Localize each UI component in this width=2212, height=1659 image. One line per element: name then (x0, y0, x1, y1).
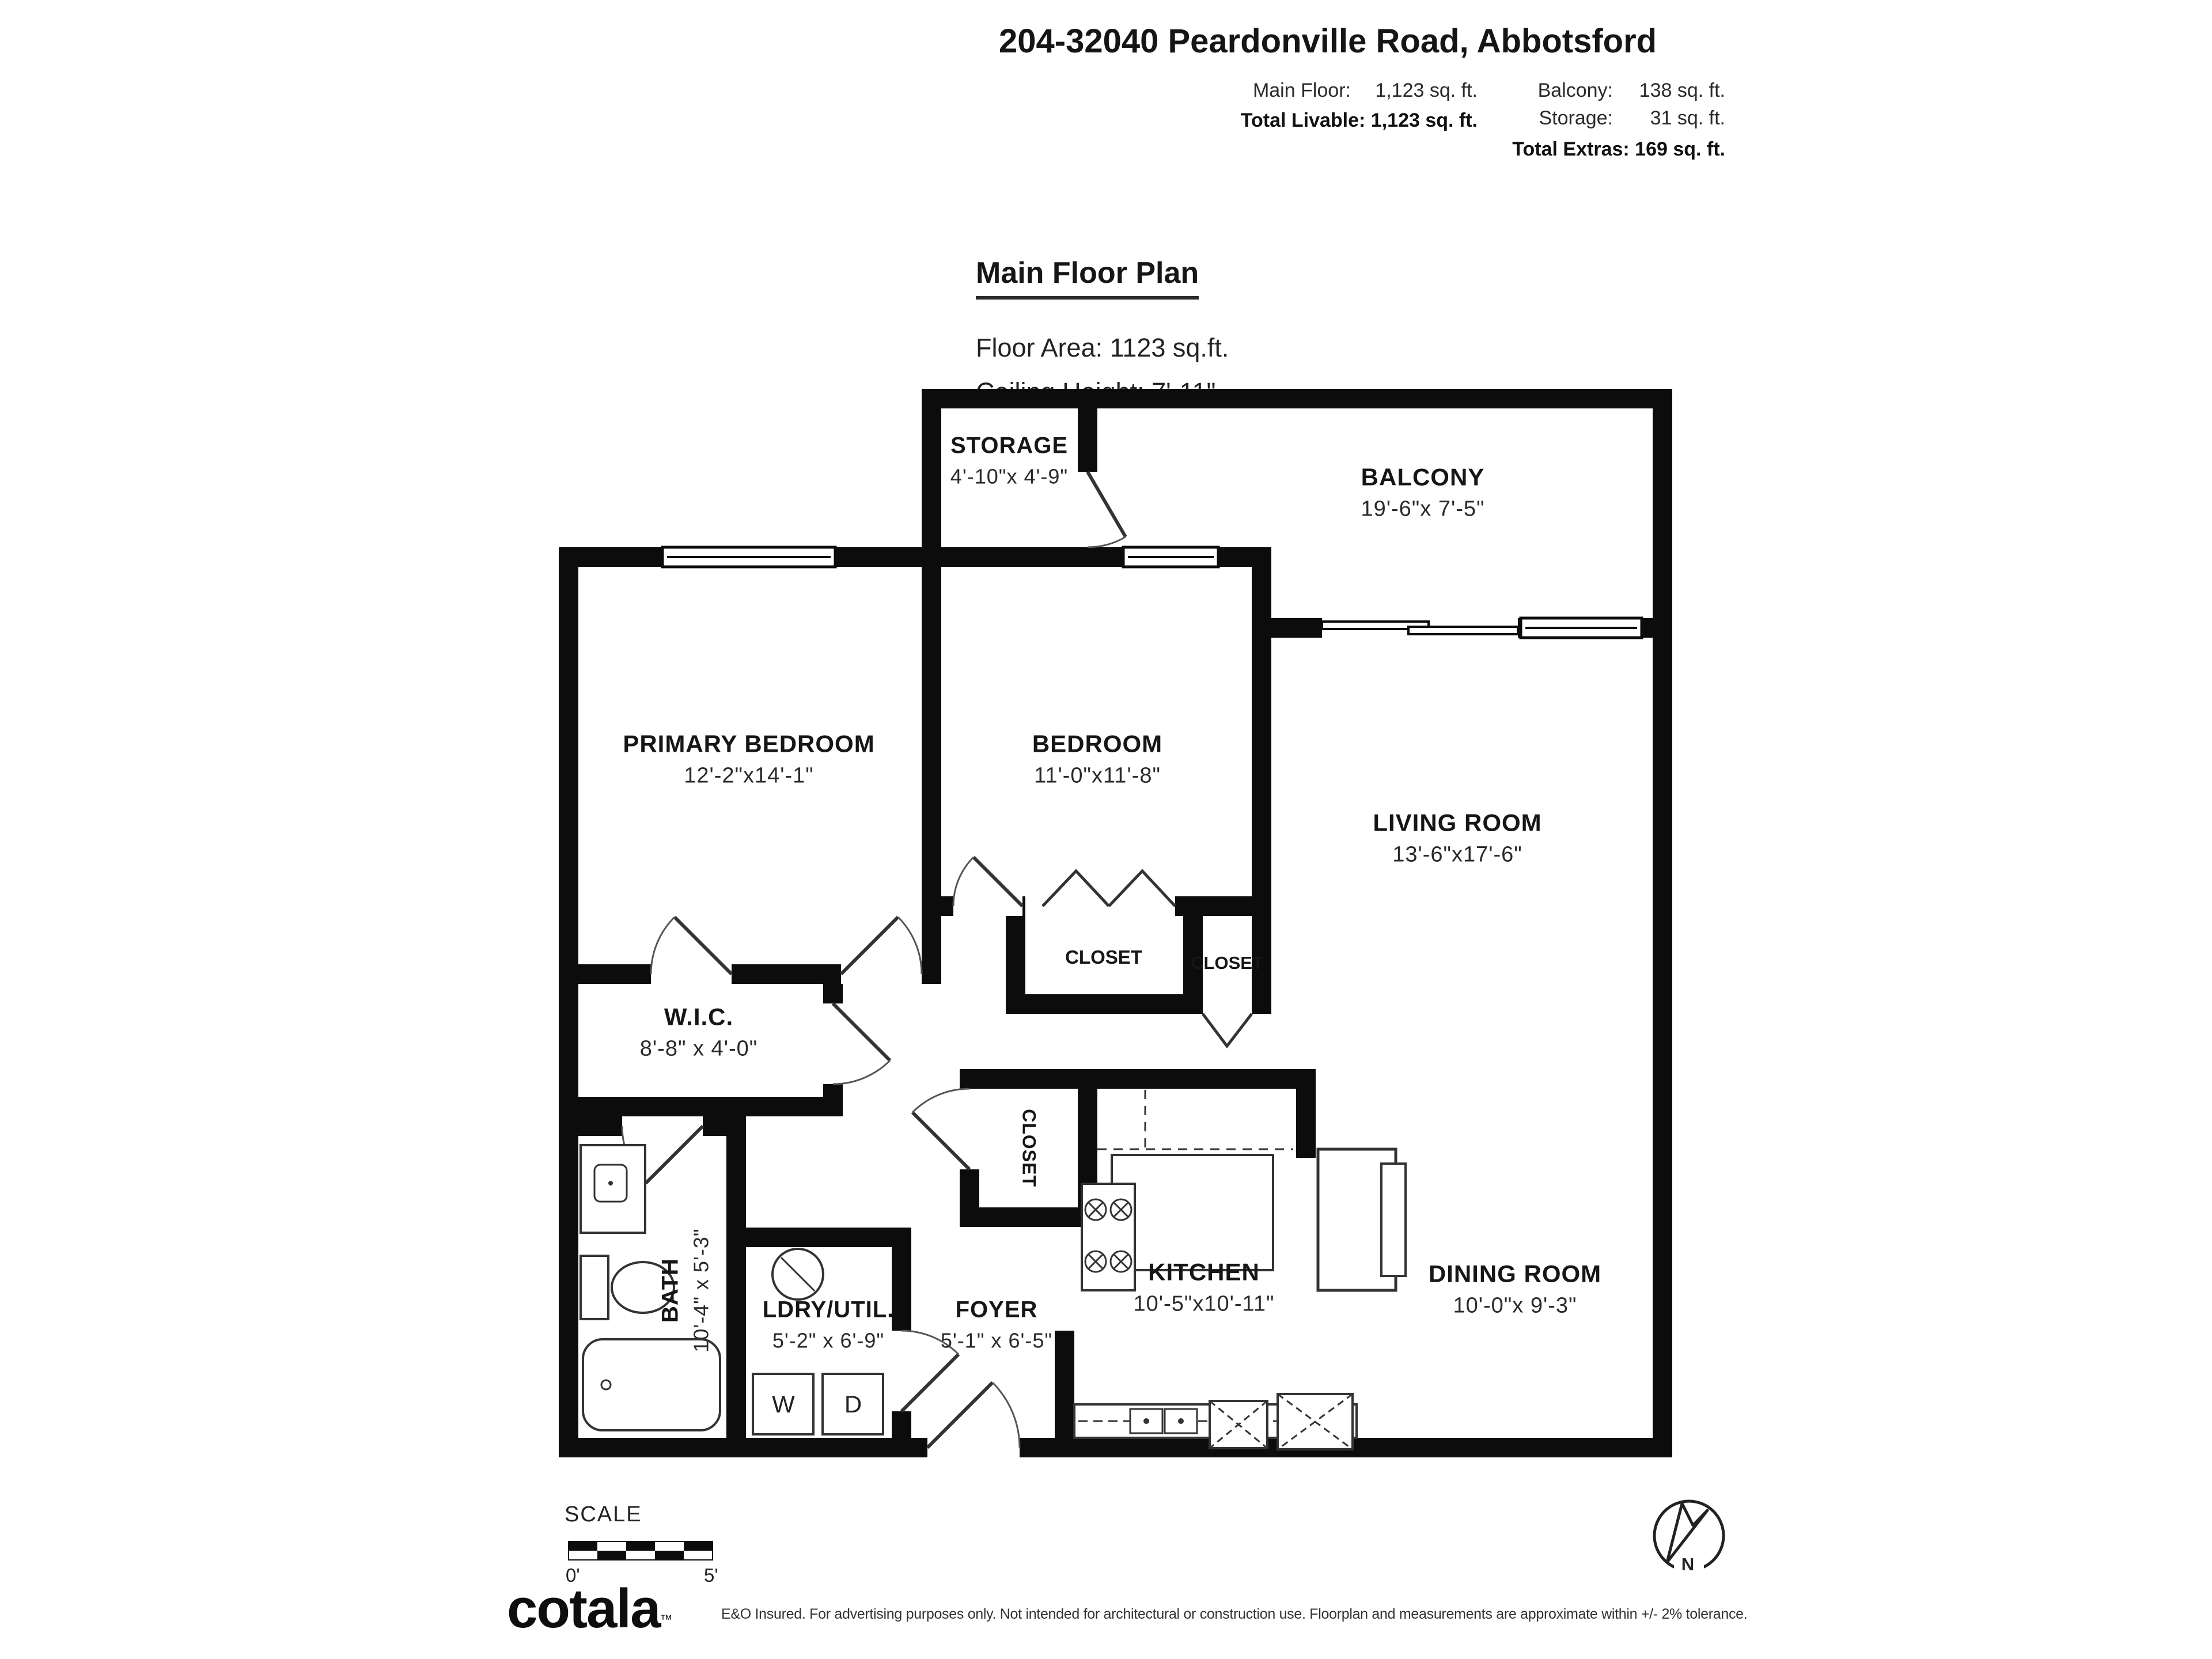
vanity-sink-icon (581, 1145, 645, 1233)
wall-bedroom-bottom-right (1175, 896, 1252, 916)
scale-end: 5' (704, 1565, 718, 1586)
label-laundry: LDRY/UTIL. 5'-2" x 6'-9" (763, 1297, 895, 1353)
wall-laundry-top (746, 1228, 911, 1247)
door-closet2-bifold (1203, 1014, 1252, 1046)
label-foyer: FOYER 5'-1" x 6'-5" (941, 1297, 1052, 1353)
label-bath: BATH 10'-4" x 5'-3" (658, 1228, 714, 1352)
label-storage: STORAGE 4'-10"x 4'-9" (950, 433, 1068, 489)
label-living-room: LIVING ROOM 13'-6"x17'-6" (1373, 809, 1541, 868)
wall-storage-right (1078, 408, 1097, 472)
floor-plan-drawing (0, 0, 2212, 1659)
dryer-label: D (844, 1391, 862, 1418)
scale-label: SCALE (565, 1502, 642, 1527)
cotala-logo: cotala (507, 1578, 660, 1639)
label-closet1: CLOSET (1065, 946, 1142, 968)
window-primary-bedroom (662, 547, 835, 567)
wall-kitchen-north (960, 1069, 1316, 1089)
scale-bar-graphic (569, 1541, 713, 1560)
wall-outer-bottom (559, 1438, 1672, 1457)
washer-label: W (772, 1391, 795, 1418)
bathtub-icon (583, 1339, 720, 1430)
wall-primary-bedroom-divider (922, 567, 941, 964)
footer-disclaimer: E&O Insured. For advertising purposes on… (721, 1606, 1747, 1623)
wall-foyer-kitchen-stub (1055, 1331, 1074, 1438)
label-dining-room: DINING ROOM 10'-0"x 9'-3" (1429, 1260, 1601, 1319)
wall-hallcloset-bottom (960, 1207, 1097, 1227)
wall-closet-bottom (1006, 994, 1203, 1014)
label-wic: W.I.C. 8'-8" x 4'-0" (640, 1003, 757, 1062)
fridge-icon (1318, 1149, 1406, 1290)
floorplan-page: 204-32040 Peardonville Road, Abbotsford … (0, 0, 2212, 1659)
window-bedroom (1123, 547, 1218, 567)
windows (662, 547, 1642, 638)
compass-north-label: N (1679, 1554, 1696, 1575)
label-primary-bedroom: PRIMARY BEDROOM 12'-2"x14'-1" (623, 730, 874, 789)
window-living-room (1521, 618, 1642, 638)
door-closet1-bifold (1043, 871, 1175, 906)
wall-top-storage-balcony (922, 389, 1672, 408)
wall-bath-right (726, 1136, 746, 1438)
wall-outer-right (1653, 389, 1672, 1457)
wall-kitchen-stub (1296, 1089, 1316, 1158)
trademark-symbol: ™ (660, 1612, 672, 1627)
sliding-door-balcony (1322, 618, 1518, 638)
label-kitchen: KITCHEN 10'-5"x10'-11" (1134, 1259, 1275, 1317)
wall-outer-left (559, 547, 578, 1457)
stove-icon (1082, 1184, 1135, 1290)
footer-logo: cotala™ (507, 1577, 672, 1641)
wall-wic-bottom (559, 1097, 843, 1116)
door-storage (1088, 472, 1126, 547)
label-bedroom: BEDROOM 11'-0"x11'-8" (1032, 730, 1162, 789)
label-hall-closet: CLOSET (1018, 1109, 1040, 1187)
wall-bedroom-right (1252, 567, 1271, 1014)
wall-storage-left (922, 408, 941, 547)
laundry-tub-icon (772, 1249, 823, 1300)
label-balcony: BALCONY 19'-6"x 7'-5" (1361, 464, 1484, 522)
label-closet2: CLOSET (1191, 953, 1263, 974)
